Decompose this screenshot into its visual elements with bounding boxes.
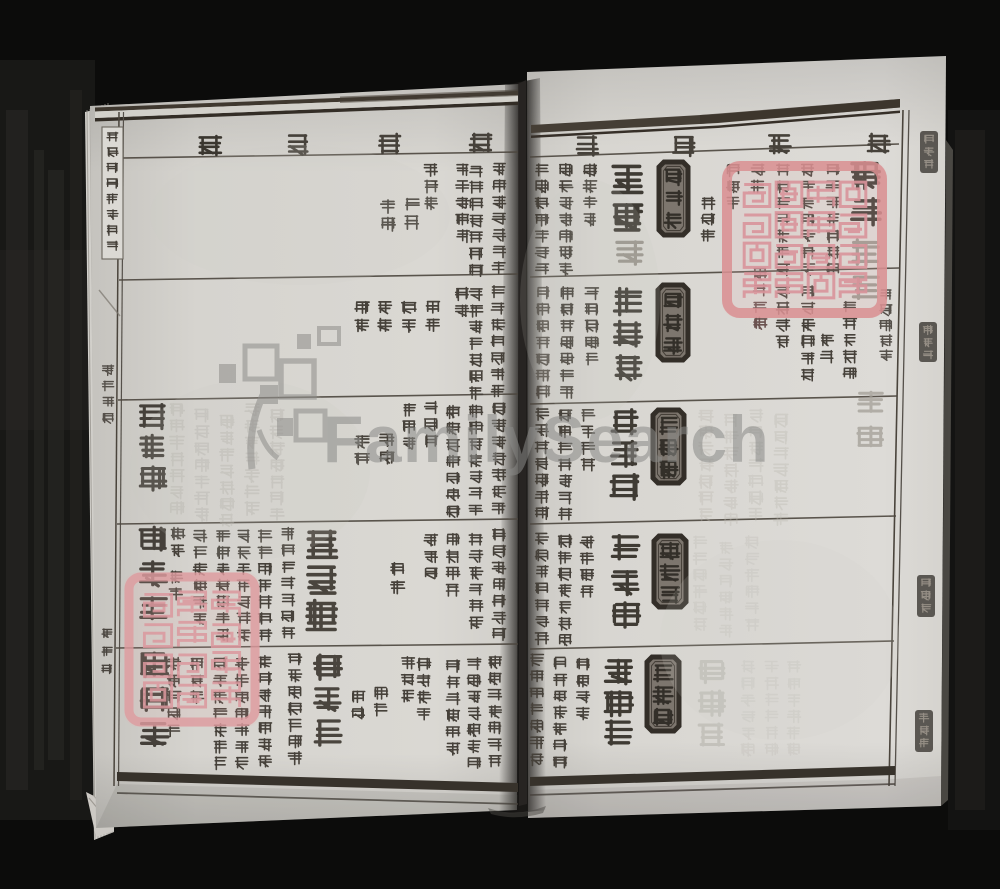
svg-text:FamilySearch: FamilySearch bbox=[323, 402, 770, 476]
